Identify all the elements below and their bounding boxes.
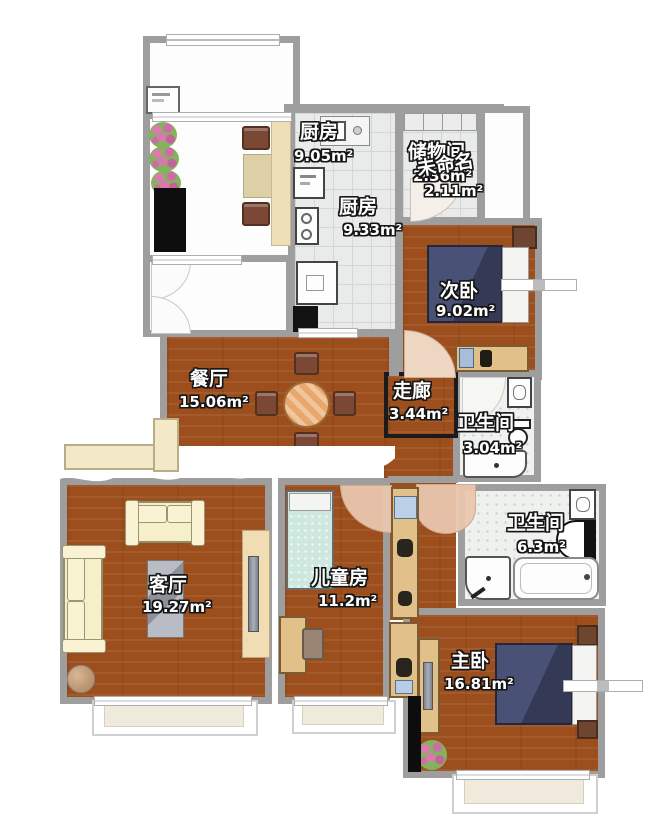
bay-window-living-sill (104, 704, 244, 727)
floor-mat (154, 188, 186, 252)
room-area-living: 19.27m² (142, 600, 212, 616)
window-sunroom-divider (152, 112, 292, 122)
room-area-second-bedroom: 9.02m² (436, 304, 495, 320)
washbasin (507, 377, 532, 408)
room-label-corridor: 走廊 (393, 382, 431, 402)
window-second-bedroom-right (501, 279, 577, 291)
flower-pot (149, 146, 179, 172)
washbasin (394, 496, 417, 519)
room-label-master: 主卧 (451, 652, 489, 672)
room-label-dining: 餐厅 (190, 370, 228, 390)
balcony-table (243, 154, 272, 198)
room-area-unnamed: 2.11m² (424, 184, 483, 200)
hall-cabinet (389, 622, 419, 698)
window-living-bottom (94, 696, 252, 706)
dining-chair (294, 352, 319, 375)
room-label-kitchen-upper: 厨房 (300, 123, 338, 143)
nightstand (577, 720, 598, 739)
nightstand (577, 625, 598, 646)
window-balcony-top (166, 34, 280, 46)
dining-chair (255, 391, 278, 416)
floor-plan: 厨房 9.05m² 厨房 9.33m² 储物间 2.36m² 未命名 2.11m… (0, 0, 670, 832)
room-area-corridor: 3.44m² (389, 407, 448, 423)
room-label-living: 客厅 (149, 576, 187, 596)
wall-kitchen-top (284, 104, 504, 113)
desk-chair (302, 628, 324, 660)
wall-dining-right (389, 334, 399, 376)
sofa (125, 501, 205, 543)
room-area-kids: 11.2m² (318, 594, 377, 610)
balcony-chair (242, 202, 270, 226)
wardrobe (408, 696, 421, 772)
room-label-second-bedroom: 次卧 (440, 282, 478, 302)
washbasin (569, 489, 596, 520)
room-label-bath-small: 卫生间 (457, 414, 514, 434)
door-swing-arc (416, 484, 476, 534)
nightstand (512, 226, 537, 249)
desk-chair (459, 348, 474, 368)
bathtub (513, 557, 599, 600)
refrigerator (293, 167, 325, 199)
room-area-bath-large: 6.3m² (517, 540, 566, 556)
tv (248, 556, 259, 632)
dining-chair (333, 391, 356, 416)
wall-hall-top (388, 476, 458, 483)
flower-pot (149, 122, 177, 148)
room-area-master: 16.81m² (444, 677, 514, 693)
window-kitchen-bottom (298, 328, 358, 338)
pillow (572, 645, 597, 684)
shower (465, 556, 511, 600)
flower-pot (417, 740, 447, 770)
room-label-kids: 儿童房 (311, 569, 368, 589)
pillow (502, 286, 529, 323)
balcony-chair (242, 126, 270, 150)
dining-table (283, 381, 330, 428)
room-area-kitchen-lower: 9.33m² (343, 223, 402, 239)
cabinet-item (396, 658, 412, 677)
stove (295, 207, 319, 245)
room-area-dining: 15.06m² (179, 395, 249, 411)
hall-cabinet (391, 487, 419, 619)
tv (423, 662, 433, 710)
cabinet-item (398, 591, 412, 606)
round-stool (67, 665, 95, 693)
window-kids-bottom (294, 696, 388, 706)
window-foyer-divider (152, 255, 242, 265)
bay-window-master-sill (464, 779, 584, 804)
counter-vertical (153, 418, 179, 472)
window-master-right (563, 680, 643, 692)
oven-cabinet (296, 261, 338, 305)
room-label-bath-large: 卫生间 (507, 514, 564, 534)
room-unnamed (478, 106, 530, 226)
room-label-kitchen-lower: 厨房 (339, 198, 377, 218)
bay-window-kids-sill (302, 704, 384, 725)
washing-machine (146, 86, 180, 114)
sofa (63, 545, 103, 653)
window-master-bottom (456, 770, 590, 780)
room-area-bath-small: 3.04m² (463, 441, 522, 457)
cabinet-item (395, 680, 413, 694)
hallway-cabinet-panel (271, 118, 291, 246)
storage-shelf (403, 113, 477, 131)
desk-item (480, 350, 492, 367)
cabinet-item (397, 539, 413, 557)
room-area-kitchen-upper: 9.05m² (294, 149, 353, 165)
